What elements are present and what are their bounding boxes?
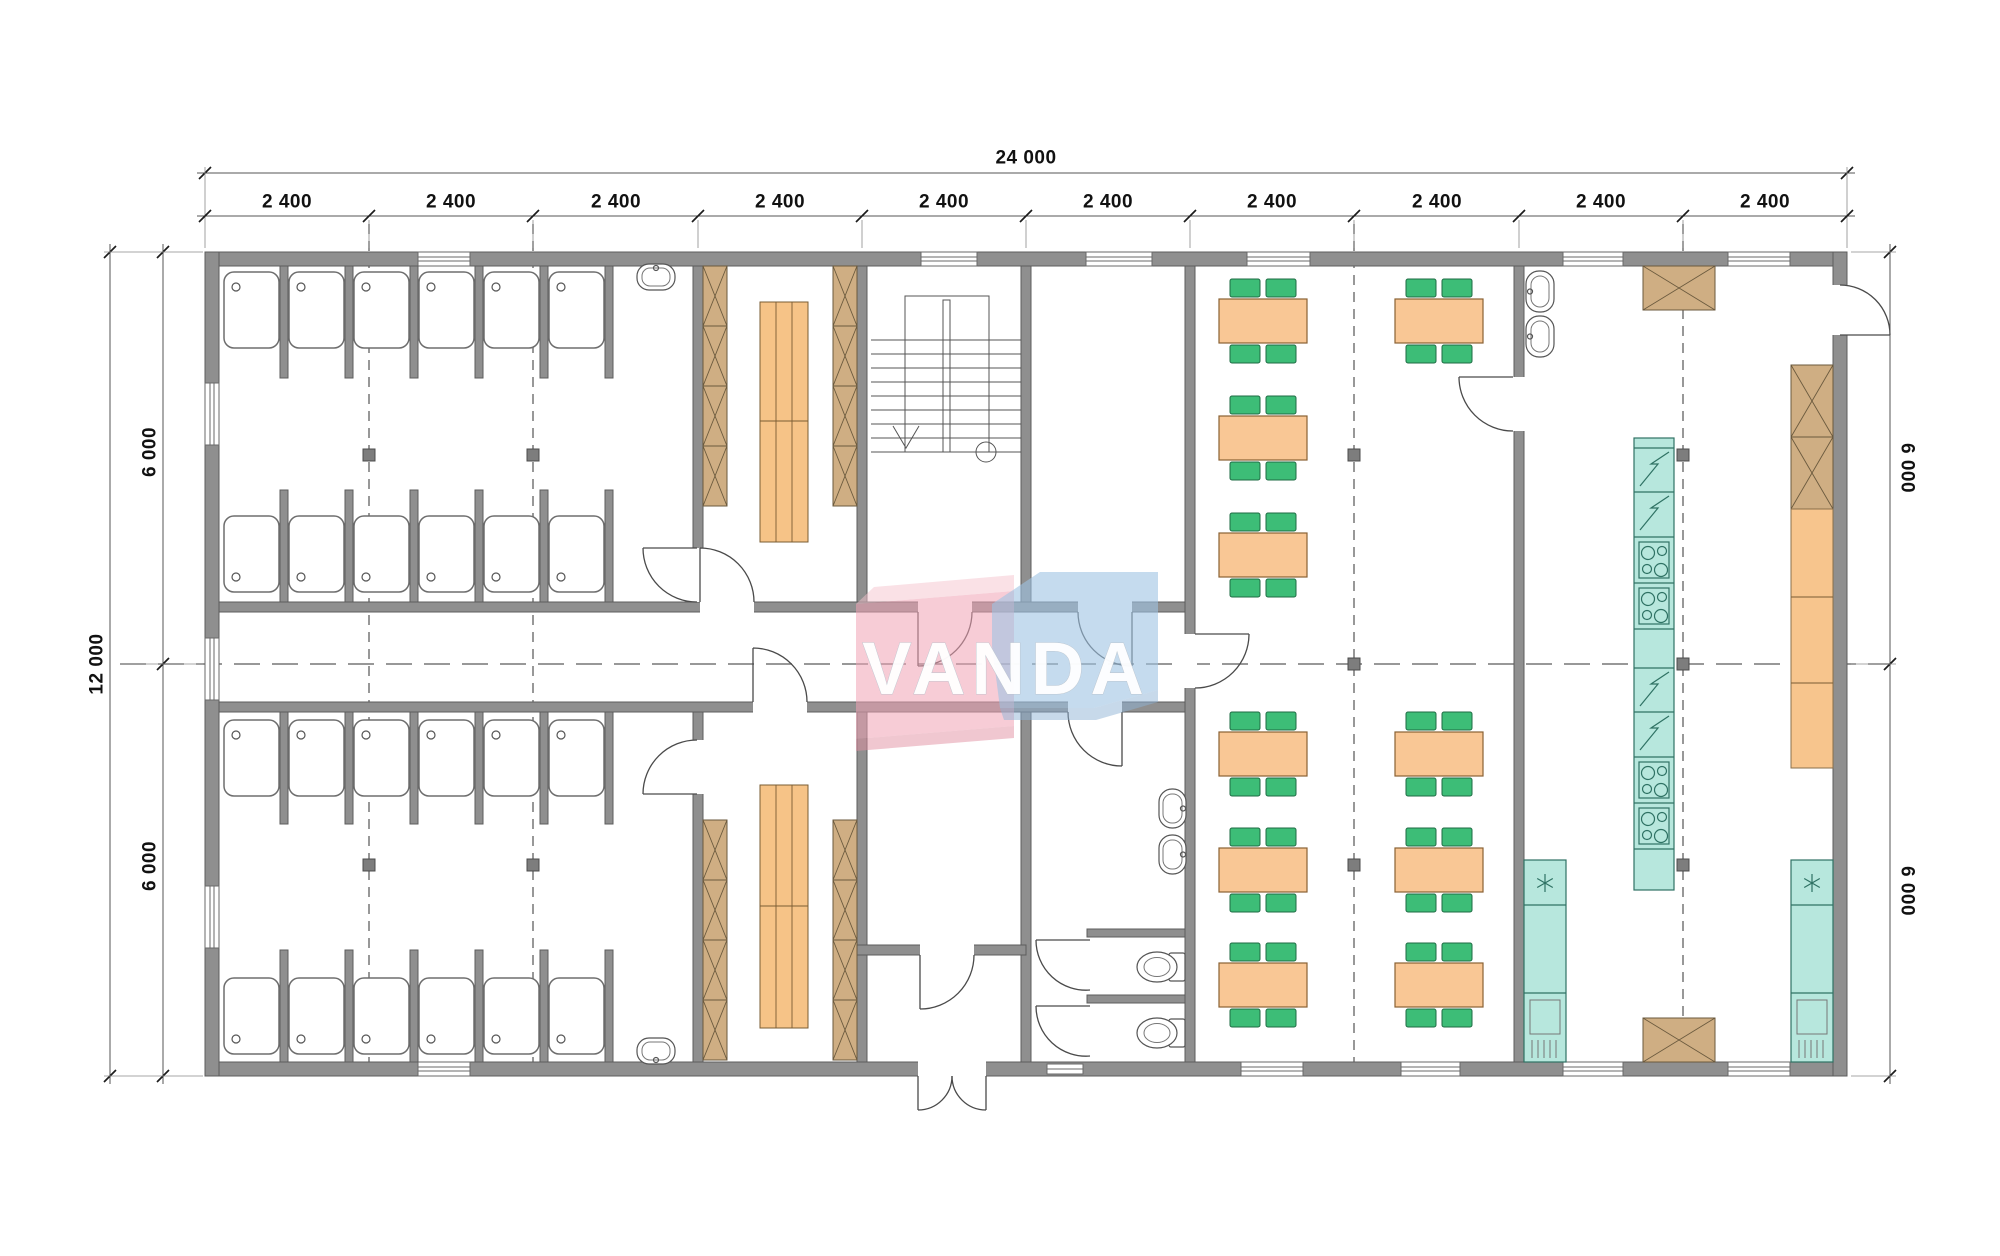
floor-plan-page: VANDA 24 000 2 400 2 400 2 400 2 400 2 4…	[0, 0, 2000, 1256]
refrigerator-west	[1524, 860, 1566, 1062]
dim-left-lower-label: 6 000	[141, 841, 160, 891]
refrigerator-east	[1791, 860, 1833, 1062]
vanda-watermark: VANDA	[856, 572, 1158, 751]
dim-right-upper-label: 6 000	[1898, 443, 1917, 493]
dim-top-segment-label: 2 400	[1247, 193, 1297, 212]
washroom-basins	[1159, 789, 1186, 874]
bench-north	[760, 302, 808, 542]
shower-stalls-south	[224, 712, 613, 1062]
stair-direction-arrow-icon	[893, 426, 919, 448]
shower-stalls-north	[224, 266, 613, 602]
dim-top-segment-label: 2 400	[1576, 193, 1626, 212]
dim-top-segment-label: 2 400	[919, 193, 969, 212]
dim-top-segment-label: 2 400	[1083, 193, 1133, 212]
kitchen-sinks	[1526, 271, 1554, 357]
dining-tables-north	[1219, 279, 1483, 597]
dim-top-segment-label: 2 400	[1412, 193, 1462, 212]
kitchen-orange-cabinets	[1791, 509, 1833, 768]
dim-left-upper-label: 6 000	[141, 427, 160, 477]
dim-left-total-label: 12 000	[88, 633, 107, 694]
watermark-text: VANDA	[862, 627, 1150, 710]
dim-top-segment-label: 2 400	[262, 193, 312, 212]
dim-right-lower-label: 6 000	[1898, 866, 1917, 916]
kitchen-island	[1634, 438, 1674, 890]
dim-top-segment-label: 2 400	[426, 193, 476, 212]
floor-plan-drawing: VANDA	[0, 0, 2000, 1256]
staircase	[871, 296, 1021, 462]
bench-south	[760, 785, 808, 1028]
dim-top-segment-label: 2 400	[591, 193, 641, 212]
washbasin-south-icon	[637, 1038, 675, 1064]
dim-top-segment-label: 2 400	[1740, 193, 1790, 212]
dim-top-segment-label: 2 400	[755, 193, 805, 212]
dim-top-total-label: 24 000	[995, 149, 1056, 168]
washbasin-north-icon	[637, 264, 675, 290]
